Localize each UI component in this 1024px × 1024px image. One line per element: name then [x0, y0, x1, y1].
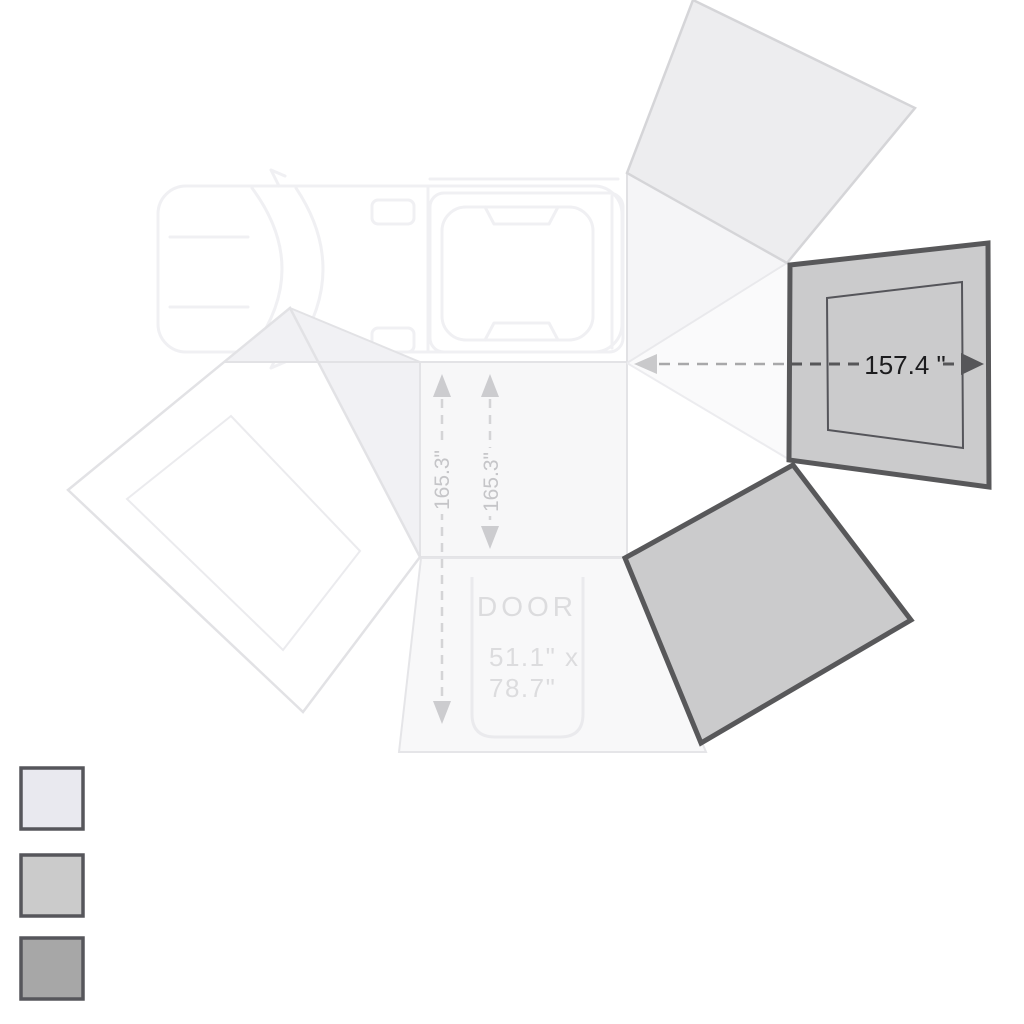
vehicle-tent-notch-bottom: [485, 323, 558, 340]
dim-depth-right: 165.3": [480, 452, 503, 512]
vehicle-hood-lines: [170, 237, 248, 307]
vehicle-mirror-top: [271, 170, 285, 186]
legend-swatch-light: [21, 768, 83, 829]
legend-swatch-medium: [21, 855, 83, 916]
awning-diagram: DOOR 51.1" x 78.7" 165.3" 165.3" 157.4 ": [0, 0, 1024, 1024]
legend: [21, 768, 83, 999]
door-label: DOOR: [477, 591, 577, 622]
legend-swatch-dark: [21, 938, 83, 999]
left-wall-window: [127, 416, 360, 650]
dim-depth-left: 165.3": [431, 450, 454, 510]
vehicle-tent-notch-top: [485, 207, 558, 224]
door-size-line2: 78.7": [489, 673, 556, 703]
dim-panel-width: 157.4 ": [864, 350, 946, 380]
vehicle-tent-footprint: [442, 207, 593, 340]
awning-diagram-page: DOOR 51.1" x 78.7" 165.3" 165.3" 157.4 ": [0, 0, 1024, 1024]
door-size-line1: 51.1" x: [489, 642, 580, 672]
vehicle-outline: [158, 170, 623, 368]
vehicle-sunroof-front: [372, 200, 414, 224]
